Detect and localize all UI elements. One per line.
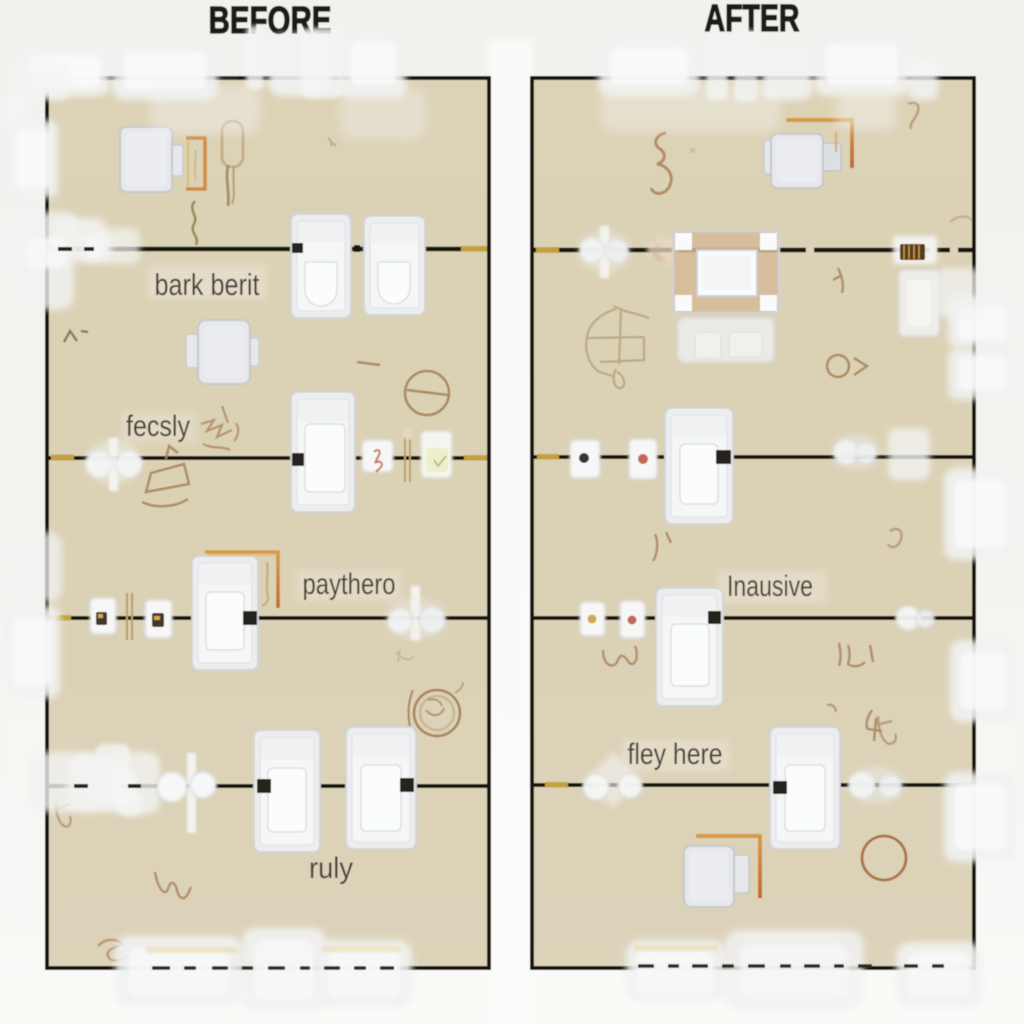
svg-text:fley here: fley here — [628, 738, 723, 771]
svg-text:Inausive: Inausive — [727, 570, 813, 603]
svg-text:paythero: paythero — [303, 568, 396, 601]
svg-text:ruly: ruly — [309, 852, 353, 885]
svg-text:fecsly: fecsly — [126, 410, 190, 443]
svg-text:bark berit: bark berit — [155, 267, 260, 302]
